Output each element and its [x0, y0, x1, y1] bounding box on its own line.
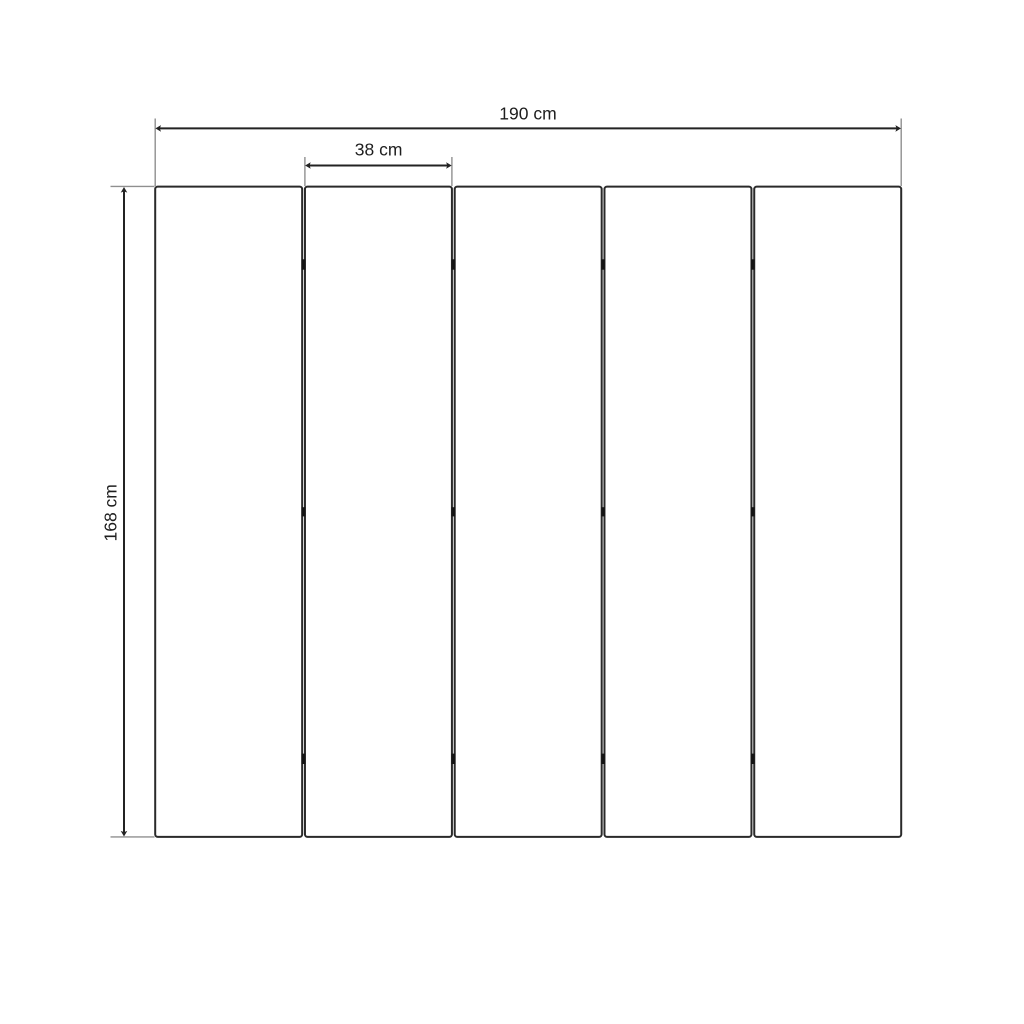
svg-text:168 cm: 168 cm: [101, 484, 121, 541]
svg-text:190 cm: 190 cm: [499, 103, 556, 123]
svg-text:38 cm: 38 cm: [355, 139, 403, 159]
